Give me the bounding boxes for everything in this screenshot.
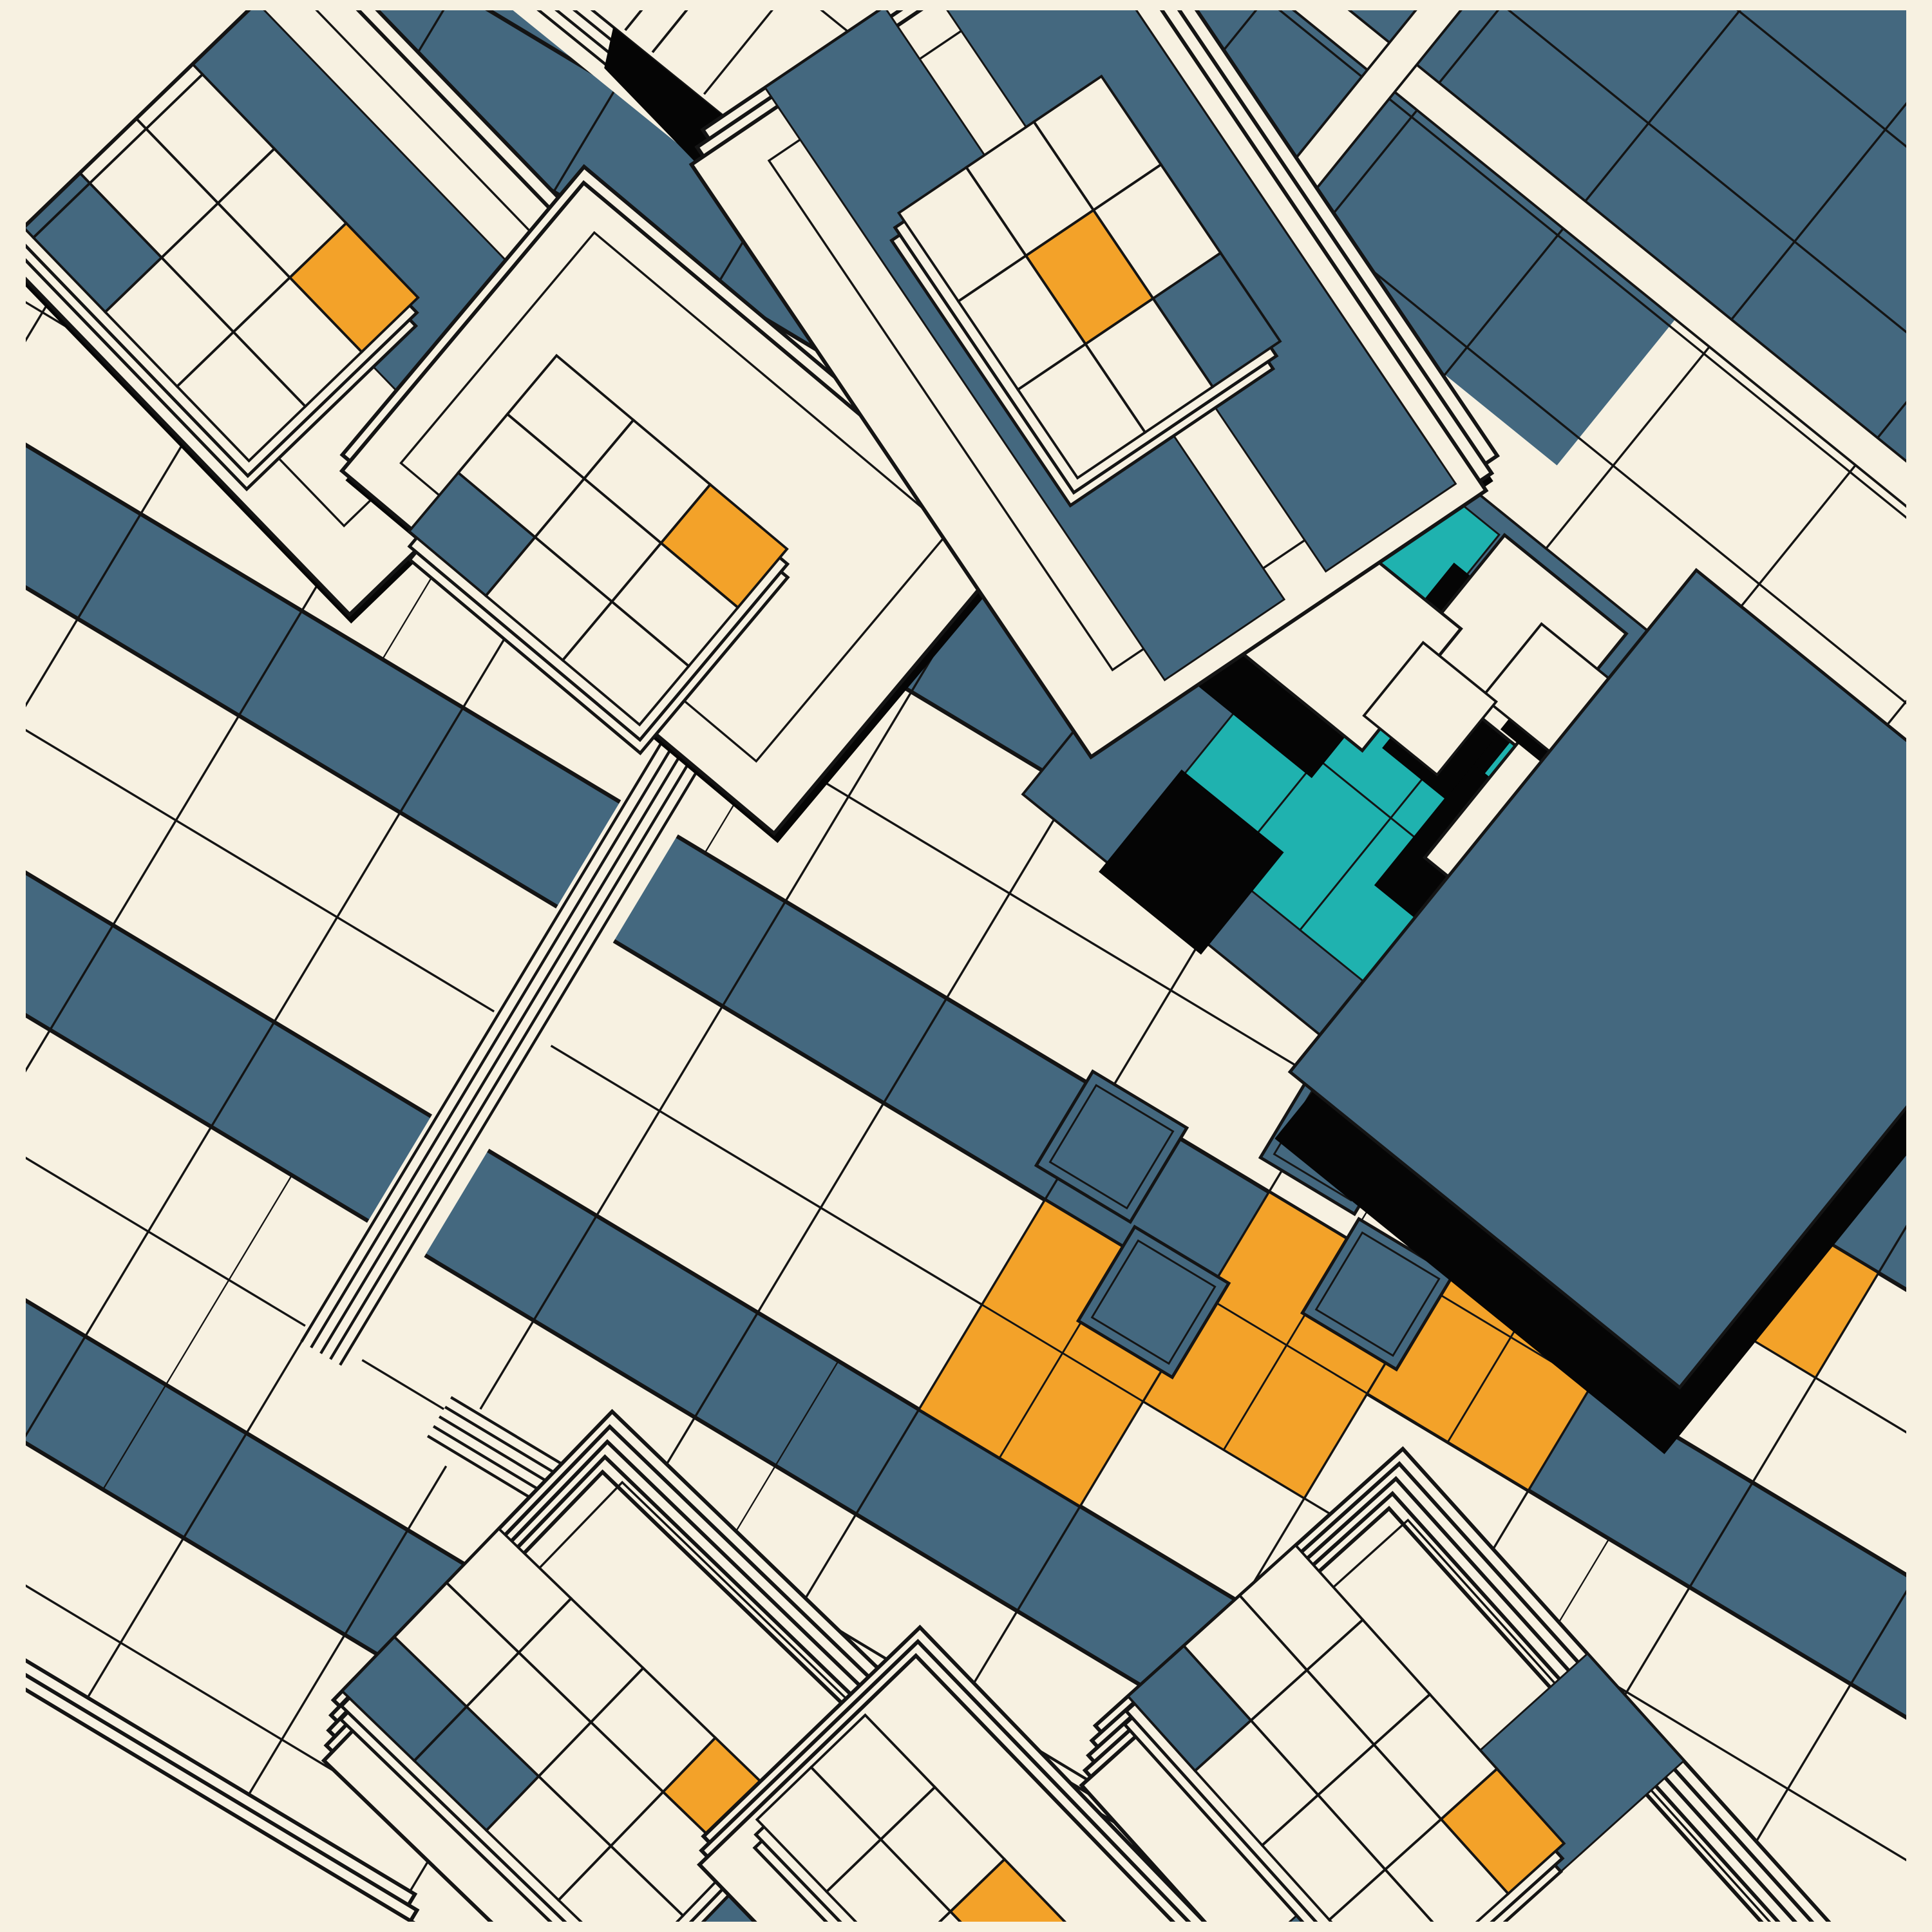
artwork-svg bbox=[26, 10, 1906, 1922]
generative-artwork bbox=[26, 10, 1906, 1922]
